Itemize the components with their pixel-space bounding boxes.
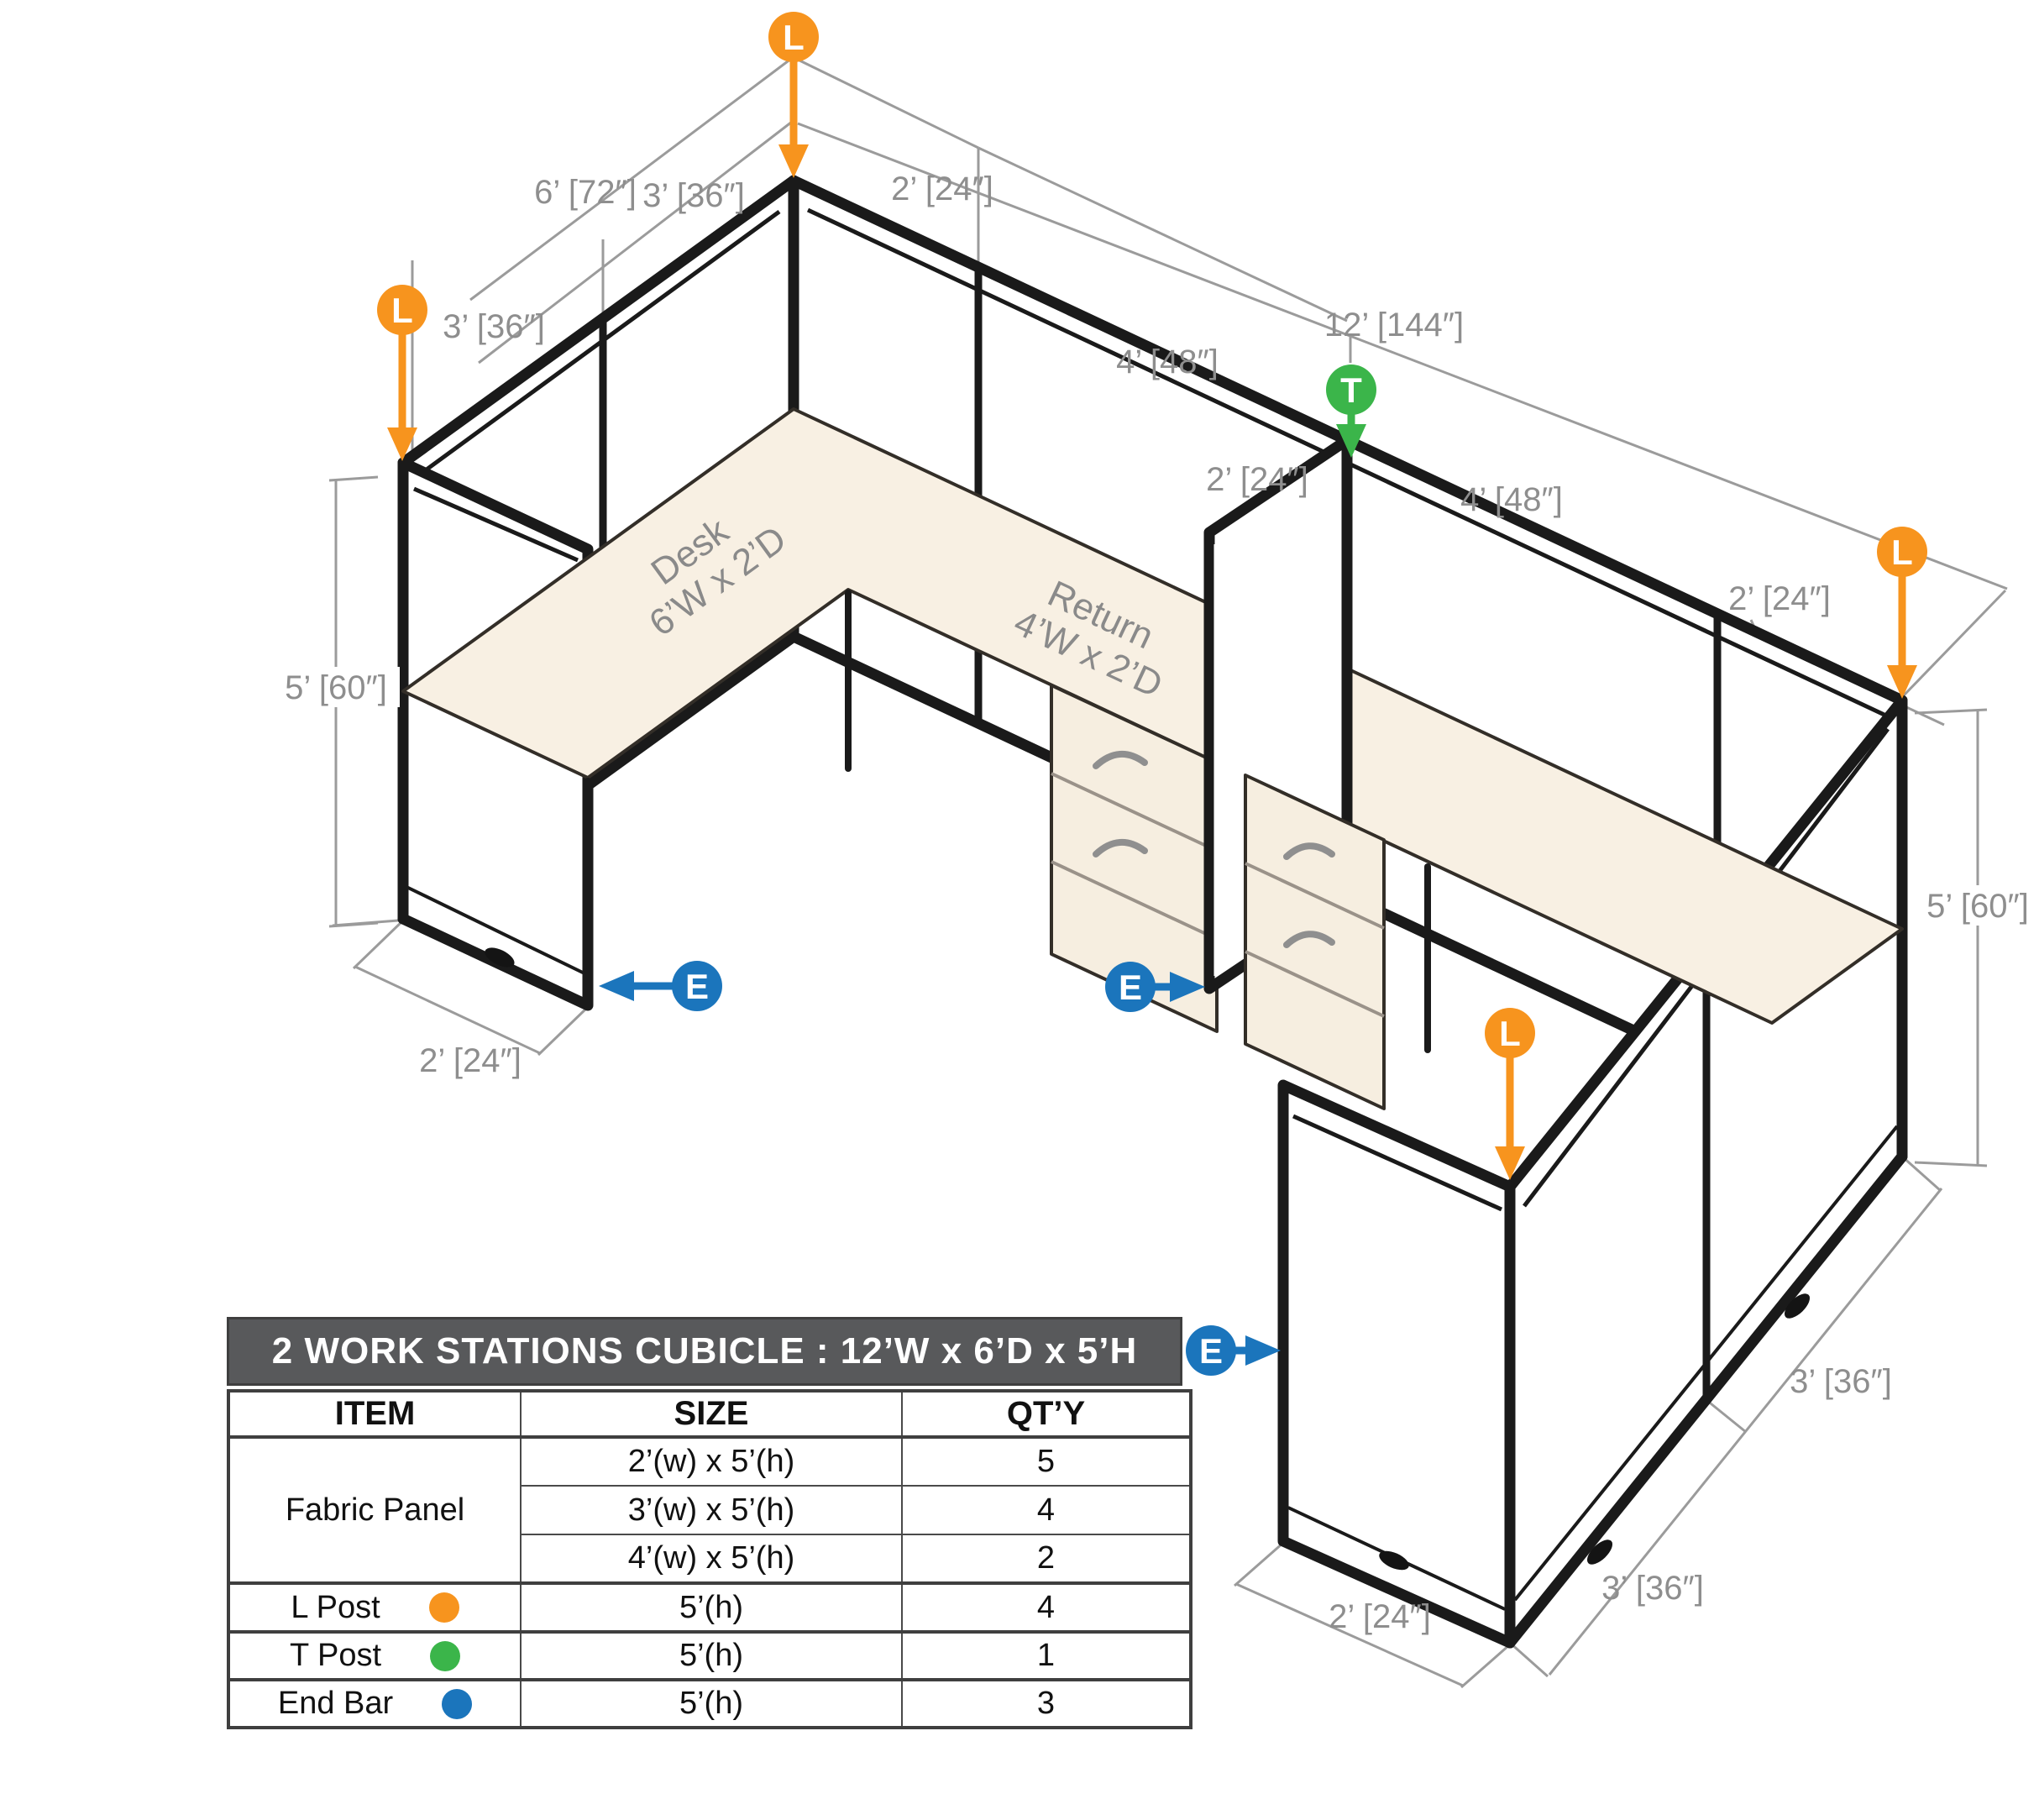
dim-right-wall-upper: 3’ [36″] [1790, 1363, 1892, 1400]
qty-cell: 1 [902, 1632, 1191, 1680]
table-row-t-post: T Post 5’(h) 1 [228, 1632, 1191, 1680]
dim-front-left-panel: 2’ [24″] [419, 1042, 522, 1079]
table-row-end-bar: End Bar 5’(h) 3 [228, 1680, 1191, 1728]
dim-right-wall-lower: 3’ [36″] [1601, 1570, 1704, 1607]
item-fabric-panel: Fabric Panel [228, 1437, 521, 1583]
end-bar-marker-left: E [599, 961, 722, 1011]
parts-table-title: 2 WORK STATIONS CUBICLE : 12’W x 6’D x 5… [227, 1317, 1182, 1386]
t-post-color-dot [430, 1641, 460, 1671]
size-cell: 5’(h) [521, 1632, 902, 1680]
dim-divider-depth: 2’ [24″] [1206, 461, 1308, 498]
marker-letter: E [1119, 968, 1142, 1007]
dim-right-height: 5’ [60″] [1926, 888, 2029, 925]
size-cell: 4’(w) x 5’(h) [521, 1534, 902, 1583]
column-header-item: ITEM [228, 1391, 521, 1437]
l-post-marker-front: L [1485, 1008, 1535, 1180]
l-post-marker-right: L [1877, 527, 1927, 699]
dim-back-panel-4: 2’ [24″] [1728, 580, 1831, 617]
table-row-fabric-2ft: Fabric Panel 2’(w) x 5’(h) 5 [228, 1437, 1191, 1486]
dim-left-wall-total: 6’ [72″] [534, 174, 637, 211]
dim-back-total: 12’ [144″] [1324, 307, 1464, 344]
dim-left-wall-lower: 3’ [36″] [443, 308, 545, 345]
size-cell: 2’(w) x 5’(h) [521, 1437, 902, 1486]
dim-left-height: 5’ [60″] [285, 669, 387, 706]
item-l-post: L Post [291, 1590, 380, 1626]
size-cell: 5’(h) [521, 1680, 902, 1728]
qty-cell: 4 [902, 1583, 1191, 1632]
qty-cell: 3 [902, 1680, 1191, 1728]
marker-letter: L [1891, 532, 1913, 572]
column-header-size: SIZE [521, 1391, 902, 1437]
front-right-panel [1283, 1085, 1510, 1643]
dim-back-panel-3: 4’ [48″] [1460, 481, 1563, 518]
l-post-marker-left: L [377, 285, 427, 461]
dim-front-right-panel: 2’ [24″] [1329, 1598, 1431, 1635]
qty-cell: 2 [902, 1534, 1191, 1583]
column-header-qty: QT’Y [902, 1391, 1191, 1437]
qty-cell: 5 [902, 1437, 1191, 1486]
end-bar-marker-right: E [1186, 1325, 1281, 1376]
item-t-post: T Post [290, 1638, 381, 1674]
marker-letter: T [1340, 370, 1362, 410]
marker-letter: L [391, 291, 413, 330]
marker-letter: E [685, 967, 709, 1006]
marker-letter: E [1199, 1331, 1223, 1371]
l-post-marker-top: L [768, 12, 819, 178]
marker-letter: L [1499, 1014, 1521, 1053]
l-post-color-dot [429, 1592, 459, 1623]
parts-table: 2 WORK STATIONS CUBICLE : 12’W x 6’D x 5… [227, 1317, 1182, 1729]
dim-back-panel-1: 2’ [24″] [891, 170, 993, 207]
end-bar-color-dot [442, 1689, 472, 1719]
item-end-bar: End Bar [278, 1686, 393, 1722]
marker-letter: L [783, 18, 805, 57]
page: Desk 6’W x 2’D Return 4’W x 2’D 6’ [72″]… [0, 0, 2039, 1820]
dim-back-panel-2: 4’ [48″] [1116, 344, 1219, 380]
qty-cell: 4 [902, 1486, 1191, 1534]
size-cell: 5’(h) [521, 1583, 902, 1632]
size-cell: 3’(w) x 5’(h) [521, 1486, 902, 1534]
dim-left-wall-upper: 3’ [36″] [642, 177, 745, 214]
table-row-l-post: L Post 5’(h) 4 [228, 1583, 1191, 1632]
